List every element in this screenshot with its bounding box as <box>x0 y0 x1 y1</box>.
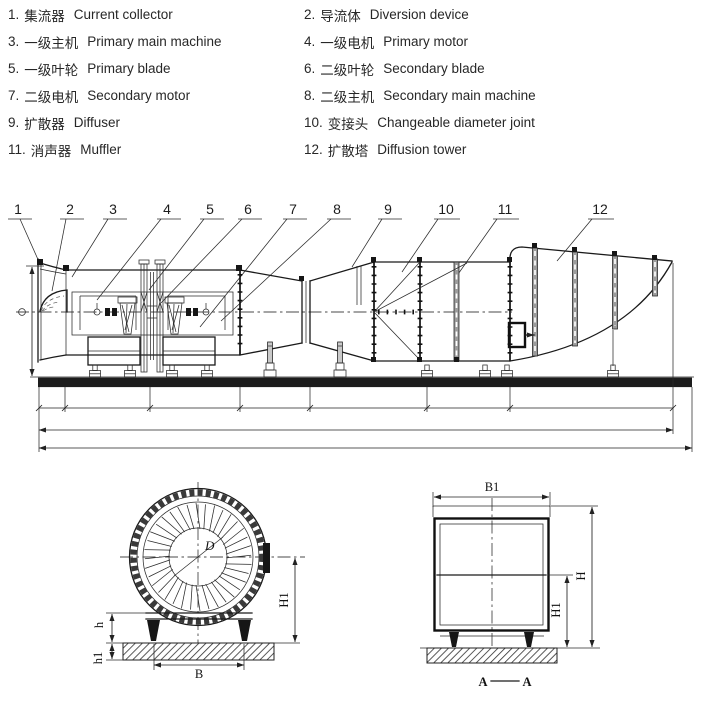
section-mark-right: A <box>522 675 531 689</box>
callout-9: 9 <box>384 201 392 217</box>
section-view: B1 H H1 A A <box>420 480 600 689</box>
callout-6: 6 <box>244 201 252 217</box>
dim-label-h1: h1 <box>91 652 105 665</box>
callout-5: 5 <box>206 201 214 217</box>
callout-2: 2 <box>66 201 74 217</box>
callout-8: 8 <box>333 201 341 217</box>
dim-label-H1-front: H1 <box>277 592 291 607</box>
callout-numbers: 1 2 3 4 5 6 7 8 9 10 11 12 <box>14 201 608 217</box>
anchor-bolts <box>90 342 619 377</box>
callout-10: 10 <box>438 201 454 217</box>
access-door <box>509 323 534 347</box>
fan-technical-diagram: 1.集流器Current collector 2.导流体Diversion de… <box>0 0 706 713</box>
front-foundation <box>106 643 300 660</box>
section-feet <box>449 632 534 647</box>
section-frame <box>433 506 550 636</box>
callout-11: 11 <box>498 201 513 217</box>
callout-leader-lines <box>8 219 614 327</box>
section-foundation <box>420 648 600 663</box>
drawing-canvas: 1 2 3 4 5 6 7 8 9 10 11 12 <box>0 0 706 713</box>
section-mark-left: A <box>478 675 487 689</box>
inlet-collector <box>37 259 69 362</box>
transition-cone <box>240 270 310 355</box>
hub-diameter-label: D <box>204 538 215 553</box>
section-mark: A A <box>478 675 531 689</box>
diffusion-tower <box>510 243 672 366</box>
dim-label-H: H <box>574 571 588 580</box>
motor-bases <box>88 337 215 365</box>
dim-label-H1-section: H1 <box>549 602 563 617</box>
section-view-dimensions: B1 H H1 <box>433 480 598 647</box>
dim-label-B: B <box>195 667 203 681</box>
front-view: D h h1 <box>91 482 305 681</box>
callout-1: 1 <box>14 201 22 217</box>
callout-4: 4 <box>163 201 171 217</box>
side-foundation <box>30 377 694 387</box>
dim-label-B1: B1 <box>485 480 500 494</box>
terminal-box <box>263 543 270 573</box>
callout-12: 12 <box>592 201 608 217</box>
diversion-body <box>40 290 67 312</box>
dim-label-h: h <box>92 621 106 628</box>
front-supports <box>146 613 252 641</box>
callout-3: 3 <box>109 201 117 217</box>
joint-and-muffler <box>371 257 512 362</box>
callout-7: 7 <box>289 201 297 217</box>
side-view-dimensions <box>26 263 692 452</box>
side-view: 1 2 3 4 5 6 7 8 9 10 11 12 <box>8 201 694 452</box>
motor-drives <box>94 297 209 334</box>
